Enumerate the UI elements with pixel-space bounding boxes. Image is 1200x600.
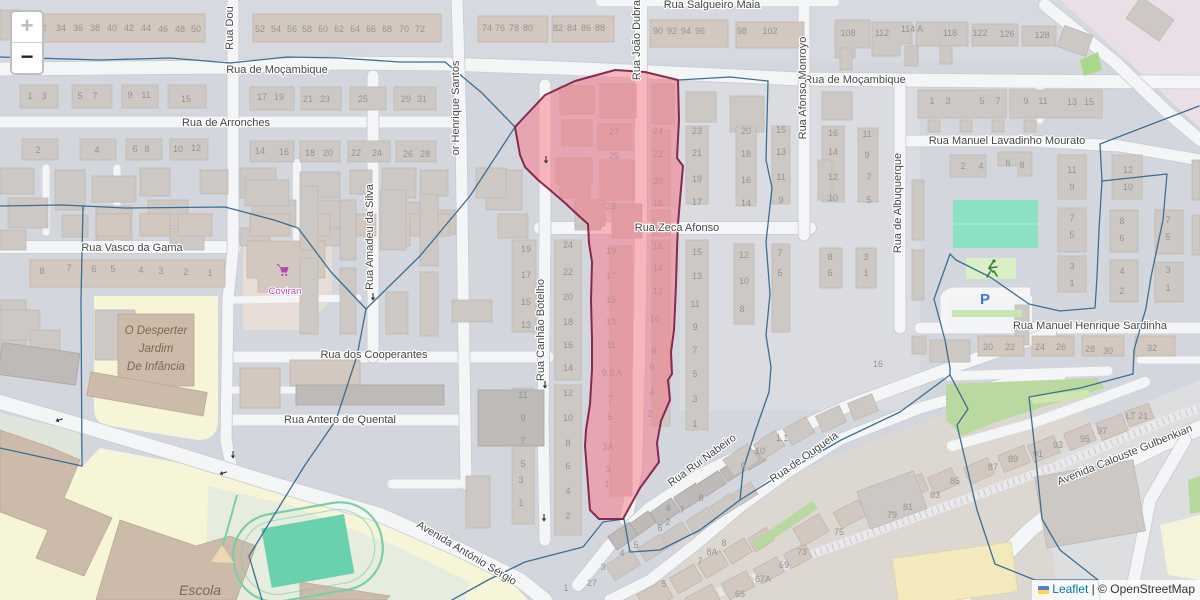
svg-text:15: 15 (692, 247, 702, 257)
svg-text:68: 68 (382, 24, 392, 34)
svg-text:9: 9 (740, 461, 745, 471)
svg-text:16: 16 (279, 147, 289, 157)
svg-text:84: 84 (567, 23, 577, 33)
svg-text:13: 13 (692, 271, 702, 281)
svg-text:8: 8 (739, 304, 744, 314)
svg-text:2: 2 (565, 511, 570, 521)
svg-text:11: 11 (776, 172, 785, 182)
svg-text:1: 1 (604, 479, 609, 489)
svg-text:5: 5 (1165, 232, 1170, 242)
svg-text:19: 19 (274, 92, 284, 102)
svg-text:4: 4 (1119, 266, 1124, 276)
svg-text:9: 9 (778, 195, 783, 205)
svg-text:70: 70 (399, 24, 409, 34)
svg-text:19: 19 (692, 174, 702, 184)
svg-text:9: 9 (864, 150, 869, 160)
svg-text:67A: 67A (755, 574, 771, 584)
svg-text:11: 11 (1038, 96, 1047, 106)
svg-text:9: 9 (127, 90, 132, 100)
svg-text:7: 7 (995, 96, 1000, 106)
svg-text:Rua de Moçambique: Rua de Moçambique (226, 64, 328, 76)
svg-text:26: 26 (403, 149, 413, 159)
svg-text:9: 9 (1069, 182, 1074, 192)
svg-text:5: 5 (607, 412, 612, 422)
svg-text:20: 20 (563, 292, 573, 302)
svg-text:7: 7 (866, 172, 871, 182)
svg-text:96: 96 (695, 26, 705, 36)
svg-text:3: 3 (518, 475, 523, 485)
svg-text:90: 90 (653, 26, 663, 36)
svg-text:114 A: 114 A (901, 24, 923, 34)
svg-text:5: 5 (520, 459, 525, 469)
svg-text:8: 8 (698, 493, 703, 503)
svg-text:Jardim: Jardim (138, 343, 174, 355)
svg-text:2: 2 (647, 409, 652, 419)
svg-text:4: 4 (94, 145, 99, 155)
svg-text:11: 11 (141, 90, 150, 100)
svg-text:29: 29 (401, 94, 411, 104)
svg-text:56: 56 (287, 24, 297, 34)
svg-text:8: 8 (144, 144, 149, 154)
svg-text:52: 52 (255, 24, 265, 34)
svg-text:6: 6 (565, 461, 570, 471)
svg-text:30: 30 (1103, 346, 1113, 356)
svg-text:19: 19 (521, 244, 531, 254)
svg-text:16: 16 (741, 175, 751, 185)
svg-text:76: 76 (495, 23, 505, 33)
svg-text:17: 17 (606, 271, 616, 281)
svg-text:65: 65 (735, 589, 745, 599)
svg-text:58: 58 (302, 24, 312, 34)
svg-text:17: 17 (257, 92, 267, 102)
svg-text:Rua dos Cooperantes: Rua dos Cooperantes (320, 349, 428, 361)
svg-text:15: 15 (606, 295, 616, 305)
svg-text:6: 6 (1005, 158, 1010, 168)
svg-text:LT 21: LT 21 (1126, 411, 1148, 421)
svg-text:81: 81 (903, 502, 913, 512)
svg-text:5: 5 (633, 540, 638, 550)
svg-text:24: 24 (1035, 342, 1045, 352)
svg-text:3: 3 (863, 252, 868, 262)
svg-text:P: P (980, 291, 990, 308)
svg-text:1: 1 (863, 268, 868, 278)
svg-text:54: 54 (271, 24, 281, 34)
svg-text:1: 1 (518, 498, 523, 508)
svg-text:15: 15 (1084, 97, 1094, 107)
svg-text:De Infância: De Infância (127, 361, 185, 373)
svg-text:86: 86 (581, 23, 591, 33)
svg-text:10: 10 (755, 446, 765, 456)
svg-text:16: 16 (563, 340, 573, 350)
svg-text:34: 34 (56, 23, 66, 33)
svg-text:Rua Vasco da Gama: Rua Vasco da Gama (81, 242, 183, 254)
svg-text:2: 2 (183, 267, 188, 277)
svg-text:5: 5 (661, 579, 666, 589)
svg-text:5: 5 (692, 369, 697, 379)
svg-text:27: 27 (609, 127, 619, 137)
svg-text:2: 2 (960, 161, 965, 171)
svg-text:94: 94 (681, 26, 691, 36)
svg-text:10: 10 (563, 413, 573, 423)
svg-text:8: 8 (651, 346, 656, 356)
svg-text:44: 44 (141, 23, 151, 33)
svg-text:75: 75 (834, 527, 844, 537)
svg-text:15: 15 (521, 297, 531, 307)
svg-text:Coviran: Coviran (269, 286, 302, 297)
svg-text:23: 23 (692, 126, 702, 136)
svg-text:7: 7 (520, 436, 525, 446)
svg-text:73: 73 (797, 547, 807, 557)
svg-text:3A: 3A (602, 442, 613, 452)
svg-text:79: 79 (887, 510, 897, 520)
svg-text:2: 2 (1119, 286, 1124, 296)
svg-text:22: 22 (653, 149, 663, 159)
svg-text:Escola: Escola (179, 582, 221, 598)
svg-text:6: 6 (827, 268, 832, 278)
svg-text:6: 6 (91, 264, 96, 274)
svg-text:7: 7 (697, 556, 702, 566)
svg-text:16: 16 (653, 241, 663, 251)
svg-text:Rua João Dubra: Rua João Dubra (631, 0, 643, 80)
svg-text:3: 3 (945, 96, 950, 106)
svg-text:16: 16 (828, 128, 838, 138)
svg-text:5: 5 (777, 268, 782, 278)
svg-text:31: 31 (417, 94, 427, 104)
svg-text:8: 8 (1019, 160, 1024, 170)
svg-text:1: 1 (692, 419, 697, 429)
svg-text:12: 12 (191, 143, 201, 153)
svg-text:18: 18 (741, 149, 751, 159)
svg-text:1: 1 (207, 268, 212, 278)
svg-text:78: 78 (509, 23, 519, 33)
svg-text:118: 118 (943, 28, 957, 38)
svg-text:24: 24 (372, 148, 382, 158)
svg-text:36: 36 (73, 23, 83, 33)
svg-text:9: 9 (1023, 96, 1028, 106)
svg-text:14: 14 (255, 146, 265, 156)
svg-text:112: 112 (875, 28, 889, 38)
svg-text:64: 64 (350, 24, 360, 34)
svg-text:26: 26 (1056, 342, 1066, 352)
svg-text:92: 92 (667, 26, 677, 36)
svg-text:Rua Canhão Botelho: Rua Canhão Botelho (535, 279, 547, 381)
svg-text:13: 13 (1067, 97, 1077, 107)
svg-text:Rua de Albuquerque: Rua de Albuquerque (892, 153, 904, 253)
svg-text:4: 4 (565, 486, 570, 496)
svg-text:38: 38 (90, 23, 100, 33)
svg-text:40: 40 (107, 23, 117, 33)
svg-text:1: 1 (1165, 283, 1170, 293)
svg-text:46: 46 (158, 24, 168, 34)
svg-text:72: 72 (415, 24, 425, 34)
svg-text:19: 19 (606, 246, 616, 256)
svg-text:3: 3 (41, 91, 46, 101)
svg-text:89: 89 (1008, 454, 1018, 464)
svg-text:Rua Antero de Quental: Rua Antero de Quental (284, 414, 396, 426)
svg-text:Rua Afonso Monroyo: Rua Afonso Monroyo (797, 37, 809, 140)
svg-text:17: 17 (692, 197, 702, 207)
svg-text:24: 24 (653, 126, 663, 136)
svg-text:4: 4 (619, 548, 624, 558)
svg-text:7: 7 (692, 345, 697, 355)
svg-text:14: 14 (828, 147, 838, 157)
svg-text:7: 7 (777, 248, 782, 258)
svg-text:3: 3 (158, 266, 163, 276)
svg-text:7: 7 (607, 394, 612, 404)
svg-text:14: 14 (563, 363, 573, 373)
svg-text:48: 48 (175, 24, 185, 34)
svg-text:6: 6 (1119, 233, 1124, 243)
svg-text:25: 25 (358, 94, 368, 104)
svg-text:1: 1 (27, 91, 32, 101)
svg-text:62: 62 (334, 24, 344, 34)
svg-text:24: 24 (563, 240, 573, 250)
svg-text:28: 28 (420, 149, 430, 159)
svg-text:10: 10 (1123, 182, 1133, 192)
svg-text:3: 3 (600, 562, 605, 572)
svg-text:Rua Dou: Rua Dou (224, 6, 236, 49)
svg-text:9: 9 (692, 322, 697, 332)
svg-text:66: 66 (366, 24, 376, 34)
svg-text:28: 28 (1085, 344, 1095, 354)
svg-text:13: 13 (776, 147, 786, 157)
svg-text:7: 7 (66, 263, 71, 273)
svg-text:4: 4 (665, 503, 670, 513)
svg-text:8: 8 (721, 538, 726, 548)
svg-text:11: 11 (690, 299, 699, 309)
svg-text:11: 11 (518, 390, 527, 400)
svg-text:18: 18 (305, 148, 315, 158)
svg-text:20: 20 (741, 126, 751, 136)
svg-text:12: 12 (739, 250, 749, 260)
svg-text:4: 4 (978, 161, 983, 171)
svg-text:21: 21 (692, 148, 702, 158)
svg-text:Rua de Moçambique: Rua de Moçambique (804, 74, 906, 86)
svg-text:20: 20 (983, 342, 993, 352)
svg-text:22: 22 (1005, 342, 1015, 352)
svg-text:6: 6 (132, 144, 137, 154)
svg-text:87: 87 (988, 462, 998, 472)
svg-text:74: 74 (482, 23, 492, 33)
svg-text:20: 20 (323, 148, 333, 158)
svg-text:95: 95 (1080, 434, 1090, 444)
svg-text:8A: 8A (706, 547, 717, 557)
svg-text:14: 14 (741, 198, 751, 208)
svg-text:83: 83 (930, 490, 940, 500)
svg-text:16: 16 (873, 359, 883, 369)
svg-text:8: 8 (1119, 216, 1124, 226)
svg-text:88: 88 (595, 23, 605, 33)
svg-text:3: 3 (1165, 265, 1170, 275)
svg-text:97: 97 (1097, 426, 1107, 436)
svg-text:93: 93 (1053, 440, 1063, 450)
svg-text:122: 122 (972, 28, 987, 38)
svg-text:1.1: 1.1 (776, 433, 789, 443)
svg-text:60: 60 (318, 24, 328, 34)
svg-text:23: 23 (606, 201, 616, 211)
svg-text:7: 7 (1165, 215, 1170, 225)
svg-text:7: 7 (1069, 213, 1074, 223)
svg-text:12: 12 (828, 172, 838, 182)
svg-text:O Desperter: O Desperter (125, 325, 189, 337)
svg-text:82: 82 (553, 23, 563, 33)
svg-text:4: 4 (649, 387, 654, 397)
svg-text:20: 20 (653, 176, 663, 186)
svg-text:102: 102 (762, 26, 777, 36)
svg-text:3: 3 (1069, 261, 1074, 271)
svg-text:3: 3 (692, 394, 697, 404)
svg-text:Rua de Arronches: Rua de Arronches (182, 117, 271, 129)
svg-text:11: 11 (606, 340, 615, 350)
svg-text:Rua Manuel Lavadinho Mourato: Rua Manuel Lavadinho Mourato (929, 135, 1086, 147)
svg-text:13: 13 (521, 320, 531, 330)
svg-text:5: 5 (866, 195, 871, 205)
svg-text:126: 126 (999, 29, 1014, 39)
svg-text:7: 7 (92, 91, 97, 101)
svg-text:17: 17 (521, 270, 531, 280)
svg-text:18: 18 (563, 317, 573, 327)
svg-text:42: 42 (124, 23, 134, 33)
svg-text:9: 9 (520, 413, 525, 423)
svg-text:22: 22 (351, 148, 361, 158)
svg-text:5: 5 (979, 96, 984, 106)
svg-text:15: 15 (181, 94, 191, 104)
svg-text:50: 50 (191, 24, 201, 34)
svg-text:98: 98 (737, 26, 747, 36)
svg-text:10: 10 (650, 314, 660, 324)
svg-text:8: 8 (39, 266, 44, 276)
svg-text:5: 5 (77, 91, 82, 101)
svg-text:18: 18 (653, 198, 663, 208)
svg-text:85: 85 (950, 476, 960, 486)
svg-text:1: 1 (929, 96, 934, 106)
svg-text:15: 15 (776, 125, 786, 135)
svg-text:Rua Amadeu da Silva: Rua Amadeu da Silva (364, 183, 376, 290)
svg-text:12: 12 (563, 388, 573, 398)
svg-text:Rua Zeca Afonso: Rua Zeca Afonso (635, 222, 719, 234)
svg-text:7: 7 (679, 505, 684, 515)
svg-text:12: 12 (653, 286, 663, 296)
svg-text:27: 27 (587, 578, 597, 588)
svg-text:91: 91 (1033, 449, 1043, 459)
svg-text:12: 12 (1123, 165, 1133, 175)
svg-text:5: 5 (1069, 230, 1074, 240)
svg-text:13: 13 (606, 317, 616, 327)
svg-text:6: 6 (657, 523, 662, 533)
svg-text:2: 2 (35, 145, 40, 155)
svg-text:21: 21 (303, 94, 313, 104)
svg-text:8: 8 (827, 252, 832, 262)
svg-text:25: 25 (609, 151, 619, 161)
svg-text:2: 2 (665, 517, 670, 527)
svg-text:6: 6 (649, 362, 654, 372)
svg-text:11: 11 (862, 129, 871, 139)
svg-text:1: 1 (563, 583, 568, 593)
svg-text:Rua Salgueiro Maia: Rua Salgueiro Maia (664, 0, 761, 11)
svg-text:8: 8 (565, 438, 570, 448)
svg-text:3: 3 (605, 464, 610, 474)
svg-text:Rua Manuel Henrique Sardinha: Rua Manuel Henrique Sardinha (1013, 320, 1168, 332)
svg-text:80: 80 (523, 23, 533, 33)
svg-text:11: 11 (1067, 165, 1076, 175)
svg-text:69: 69 (779, 560, 789, 570)
svg-text:9,9 A: 9,9 A (602, 368, 623, 378)
svg-text:10: 10 (173, 144, 183, 154)
svg-text:23: 23 (320, 94, 330, 104)
svg-text:22: 22 (563, 267, 573, 277)
svg-text:32: 32 (1147, 343, 1157, 353)
svg-text:14: 14 (653, 263, 663, 273)
svg-text:128: 128 (1034, 30, 1049, 40)
svg-text:5: 5 (110, 264, 115, 274)
svg-text:or Henrique Santos: or Henrique Santos (450, 60, 462, 155)
svg-text:10: 10 (828, 193, 838, 203)
svg-text:108: 108 (840, 28, 855, 38)
svg-text:1: 1 (1069, 278, 1074, 288)
svg-text:4: 4 (138, 265, 143, 275)
svg-text:10: 10 (739, 276, 749, 286)
